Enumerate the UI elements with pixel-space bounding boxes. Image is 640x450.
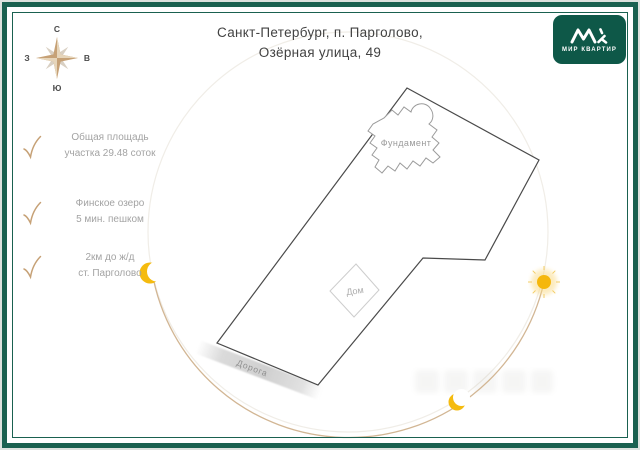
logo-monogram-icon	[569, 26, 611, 44]
compass-south-label: Ю	[53, 83, 62, 93]
title-line-1: Санкт-Петербург, п. Парголово,	[160, 23, 480, 43]
compass-west-label: З	[24, 53, 29, 63]
checkmark-icon	[22, 254, 42, 280]
feature-railway: 2км до ж/д ст. Парголово	[22, 250, 172, 281]
foundation-label: Фундамент	[381, 138, 431, 148]
page-title: Санкт-Петербург, п. Парголово, Озёрная у…	[160, 23, 480, 63]
feature-railway-line2: ст. Парголово	[48, 266, 172, 282]
feature-lake-line2: 5 мин. пешком	[48, 212, 172, 228]
page: С Ю З В Санкт-Петербург, п. Парголово, О…	[0, 0, 640, 450]
compass-north-label: С	[54, 24, 60, 34]
feature-lake-line1: Финское озеро	[48, 196, 172, 212]
compass-cardinal-highlight	[36, 37, 78, 79]
feature-area-line1: Общая площадь	[48, 130, 172, 146]
checkmark-icon	[22, 134, 42, 160]
feature-area-line2: участка 29.48 соток	[48, 146, 172, 162]
feature-lake: Финское озеро 5 мин. пешком	[22, 196, 172, 227]
logo-caption: МИР КВАРТИР	[562, 47, 617, 53]
watermark-ghost	[415, 370, 553, 393]
sun-marker	[528, 266, 560, 298]
compass-east-label: В	[84, 53, 90, 63]
title-line-2: Озёрная улица, 49	[160, 43, 480, 63]
checkmark-icon	[22, 200, 42, 226]
feature-railway-line1: 2км до ж/д	[48, 250, 172, 266]
compass-rose: С Ю З В	[17, 18, 97, 98]
brand-logo: МИР КВАРТИР	[553, 15, 626, 64]
feature-area: Общая площадь участка 29.48 соток	[22, 130, 172, 161]
